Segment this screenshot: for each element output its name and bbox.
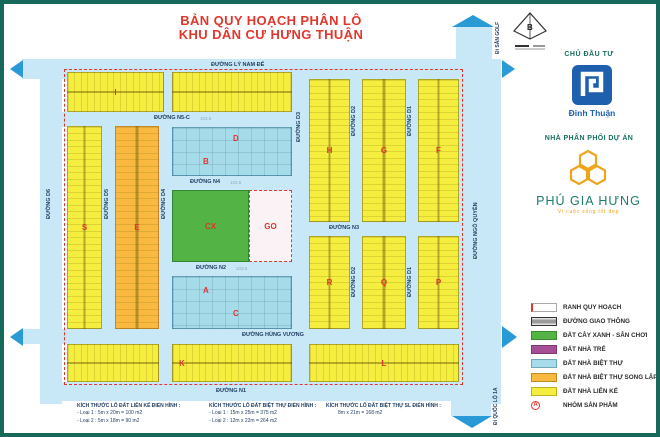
road-stub-highway bbox=[451, 400, 491, 416]
block-label-H: H bbox=[327, 146, 333, 155]
road-label-d1-bottom: ĐƯỜNG D1 bbox=[407, 267, 413, 297]
map-block-I2 bbox=[172, 72, 292, 112]
map-block-G: G bbox=[362, 79, 406, 222]
legend-swatch-nursery bbox=[531, 345, 557, 354]
road-label-ly-nam-de: ĐƯỜNG LÝ NAM ĐẾ bbox=[211, 62, 264, 68]
exit-arrow-golf bbox=[452, 15, 494, 27]
note-block-3: KÍCH THƯỚC LÔ ĐẤT BIỆT THỰ SL ĐIỂN HÌNH … bbox=[326, 403, 441, 417]
block-label-B: B bbox=[203, 157, 209, 166]
map-block-K1 bbox=[67, 344, 159, 382]
legend-row-villa: ĐẤT NHÀ BIỆT THỰ bbox=[531, 357, 623, 369]
map-block-K2: K bbox=[172, 344, 292, 382]
legend-label: ĐẤT NHÀ BIỆT THỰ SONG LẬP bbox=[563, 374, 657, 381]
map-block-GO: GO bbox=[249, 190, 292, 262]
distributor-logo-icon bbox=[565, 147, 611, 193]
road-d5 bbox=[102, 126, 115, 329]
legend-swatch-villa bbox=[531, 359, 557, 368]
block-label-K: K bbox=[179, 359, 185, 368]
legend-label: ĐẤT NHÀ BIỆT THỰ bbox=[563, 360, 623, 367]
road-label-d2-top: ĐƯỜNG D2 bbox=[351, 106, 357, 136]
road-dim-n2: 103.5 bbox=[236, 266, 247, 271]
road-label-d5: ĐƯỜNG D5 bbox=[104, 189, 110, 219]
note-line: - Loại 2 : 5m x 18m = 90 m2 bbox=[77, 417, 180, 425]
investor-name: Đinh Thuận bbox=[564, 108, 620, 118]
road-label-n5c: ĐƯỜNG N5-C bbox=[154, 115, 190, 121]
legend-row-row: ĐẤT NHÀ LIÊN KẾ bbox=[531, 385, 618, 397]
road-label-n1: ĐƯỜNG N1 bbox=[216, 388, 246, 394]
note-line: - Loại 1 : 5m x 20m = 100 m2 bbox=[77, 409, 180, 417]
block-label-R: R bbox=[327, 278, 333, 287]
road-n2 bbox=[171, 262, 297, 276]
legend-label: ĐẤT NHÀ TRẺ bbox=[563, 346, 606, 353]
map-block-E: E bbox=[115, 126, 159, 329]
road-ngo-quyen bbox=[459, 59, 501, 404]
note-block-1: KÍCH THƯỚC LÔ ĐẤT LIÊN KẾ ĐIỂN HÌNH : - … bbox=[77, 403, 180, 425]
svg-text:B: B bbox=[527, 23, 533, 32]
map-block-F: F bbox=[418, 79, 459, 222]
title-line1: BẢN QUY HOẠCH PHÂN LÔ bbox=[156, 14, 386, 28]
legend-row-semi: ĐẤT NHÀ BIỆT THỰ SONG LẬP bbox=[531, 371, 657, 383]
road-dim-n5c: 103.5 bbox=[200, 116, 211, 121]
legend-row-group: A NHÓM SẢN PHẨM bbox=[531, 399, 618, 411]
distributor-heading: NHÀ PHÂN PHỐI DỰ ÁN bbox=[534, 135, 644, 142]
road-d4 bbox=[159, 79, 172, 382]
road-label-d2-bottom: ĐƯỜNG D2 bbox=[351, 267, 357, 297]
block-label-CX: CX bbox=[205, 222, 216, 231]
map-block-BD: D B bbox=[172, 127, 292, 176]
block-label-C: C bbox=[233, 309, 239, 318]
block-label-P: P bbox=[436, 278, 441, 287]
map-block-CX: CX bbox=[172, 190, 249, 262]
road-label-d3: ĐƯỜNG D3 bbox=[296, 112, 302, 142]
map-block-I1: I bbox=[67, 72, 164, 112]
block-label-S: S bbox=[82, 223, 87, 232]
block-label-F: F bbox=[436, 146, 441, 155]
road-label-n4: ĐƯỜNG N4 bbox=[190, 179, 220, 185]
note-block-2: KÍCH THƯỚC LÔ ĐẤT BIỆT THỰ ĐIỂN HÌNH : -… bbox=[209, 403, 316, 425]
block-label-E: E bbox=[134, 223, 139, 232]
map-block-Q: Q bbox=[362, 236, 406, 329]
legend-row-boundary: RANH QUY HOẠCH bbox=[531, 301, 621, 313]
block-label-G: G bbox=[381, 146, 387, 155]
road-label-n2: ĐƯỜNG N2 bbox=[196, 265, 226, 271]
road-label-d4: ĐƯỜNG D4 bbox=[161, 189, 167, 219]
map-block-AC: A C bbox=[172, 276, 292, 329]
block-label-Q: Q bbox=[381, 278, 387, 287]
road-n1 bbox=[40, 382, 501, 401]
road-dim-n4: 103.5 bbox=[230, 180, 241, 185]
page-title: BẢN QUY HOẠCH PHÂN LÔ KHU DÂN CƯ HƯNG TH… bbox=[156, 14, 386, 42]
exit-arrow-right-top bbox=[502, 60, 515, 78]
legend-label: ĐẤT NHÀ LIÊN KẾ bbox=[563, 388, 618, 395]
legend-label: NHÓM SẢN PHẨM bbox=[563, 402, 618, 409]
note-line: - Loại 2 : 12m x 22m = 264 m2 bbox=[209, 417, 316, 425]
plan-poster: BẢN QUY HOẠCH PHÂN LÔ KHU DÂN CƯ HƯNG TH… bbox=[0, 0, 660, 437]
map-block-R: R bbox=[309, 236, 350, 329]
legend-swatch-green bbox=[531, 331, 557, 340]
distributor-name: PHÚ GIA HƯNG bbox=[536, 194, 641, 208]
legend-label: RANH QUY HOẠCH bbox=[563, 304, 621, 311]
road-label-hung-vuong: ĐƯỜNG HÙNG VƯƠNG bbox=[242, 332, 304, 338]
exit-arrow-right-hung-vuong bbox=[502, 326, 517, 348]
note-line: - Loại 1 : 15m x 25m = 375 m2 bbox=[209, 409, 316, 417]
block-label-A: A bbox=[203, 286, 209, 295]
legend-swatch-semi bbox=[531, 373, 557, 382]
legend-swatch-road bbox=[531, 317, 557, 326]
map-block-S: S bbox=[67, 126, 102, 329]
block-label-L: L bbox=[382, 359, 387, 368]
distributor-tagline: Vì cuộc sống tốt đẹp bbox=[536, 209, 641, 215]
compass-icon: B bbox=[507, 10, 553, 54]
block-label-I: I bbox=[114, 88, 116, 97]
map-block-H: H bbox=[309, 79, 350, 222]
legend-row-green: ĐẤT CÂY XANH - SÂN CHƠI bbox=[531, 329, 647, 341]
road-stub-golf bbox=[456, 26, 492, 61]
road-label-ngo-quyen: ĐƯỜNG NGÔ QUYỀN bbox=[473, 202, 479, 259]
exit-label-highway: Đi QUỐC LỘ 1A bbox=[493, 387, 499, 425]
investor-logo bbox=[571, 64, 613, 106]
note-line: 8m x 21m = 168 m2 bbox=[326, 409, 441, 417]
map-block-P: P bbox=[418, 236, 459, 329]
legend-row-road: ĐƯỜNG GIAO THÔNG bbox=[531, 315, 630, 327]
road-label-d1-top: ĐƯỜNG D1 bbox=[407, 106, 413, 136]
legend-label: ĐƯỜNG GIAO THÔNG bbox=[563, 318, 630, 325]
exit-arrow-left-top bbox=[10, 60, 23, 78]
exit-arrow-left-hung-vuong bbox=[10, 328, 23, 346]
legend-swatch-boundary bbox=[531, 303, 557, 312]
legend-swatch-row bbox=[531, 387, 557, 396]
road-label-n3: ĐƯỜNG N3 bbox=[329, 225, 359, 231]
exit-label-golf: Đi SÂN GOLF bbox=[495, 22, 501, 54]
title-line2: KHU DÂN CƯ HƯNG THUẬN bbox=[156, 28, 386, 42]
block-label-D: D bbox=[233, 134, 239, 143]
map-block-L: L bbox=[309, 344, 459, 382]
block-label-GO: GO bbox=[264, 222, 276, 231]
road-label-d6: ĐƯỜNG D6 bbox=[46, 189, 52, 219]
legend-symbol-group: A bbox=[531, 401, 540, 410]
investor-heading: CHỦ ĐẦU TƯ bbox=[549, 51, 629, 58]
exit-arrow-highway bbox=[452, 416, 492, 428]
legend-row-nursery: ĐẤT NHÀ TRẺ bbox=[531, 343, 606, 355]
road-n3 bbox=[297, 222, 461, 236]
road-d6 bbox=[40, 59, 62, 404]
legend-label: ĐẤT CÂY XANH - SÂN CHƠI bbox=[563, 332, 647, 339]
